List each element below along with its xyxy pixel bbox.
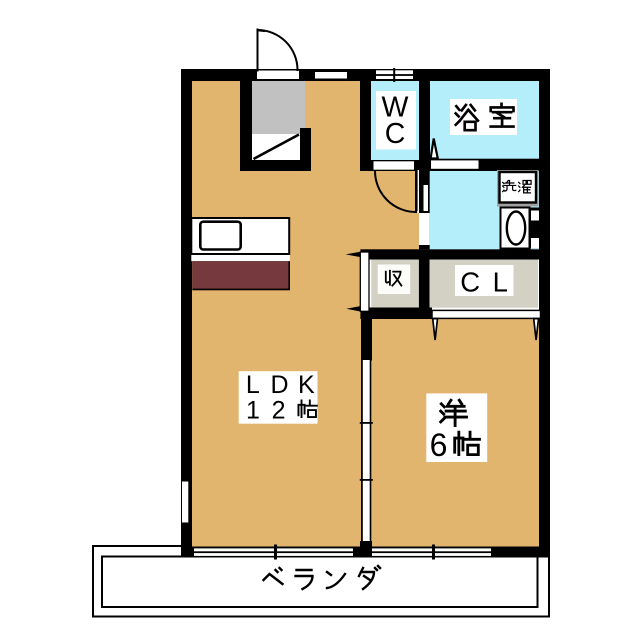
svg-text:C: C (385, 118, 406, 150)
svg-text:1: 1 (246, 396, 260, 424)
svg-text:L: L (493, 266, 508, 297)
svg-text:C: C (460, 266, 480, 297)
svg-text:6: 6 (430, 427, 448, 463)
svg-text:K: K (298, 371, 315, 399)
svg-text:2: 2 (272, 396, 286, 424)
svg-text:L: L (246, 371, 260, 399)
svg-text:D: D (270, 371, 288, 399)
